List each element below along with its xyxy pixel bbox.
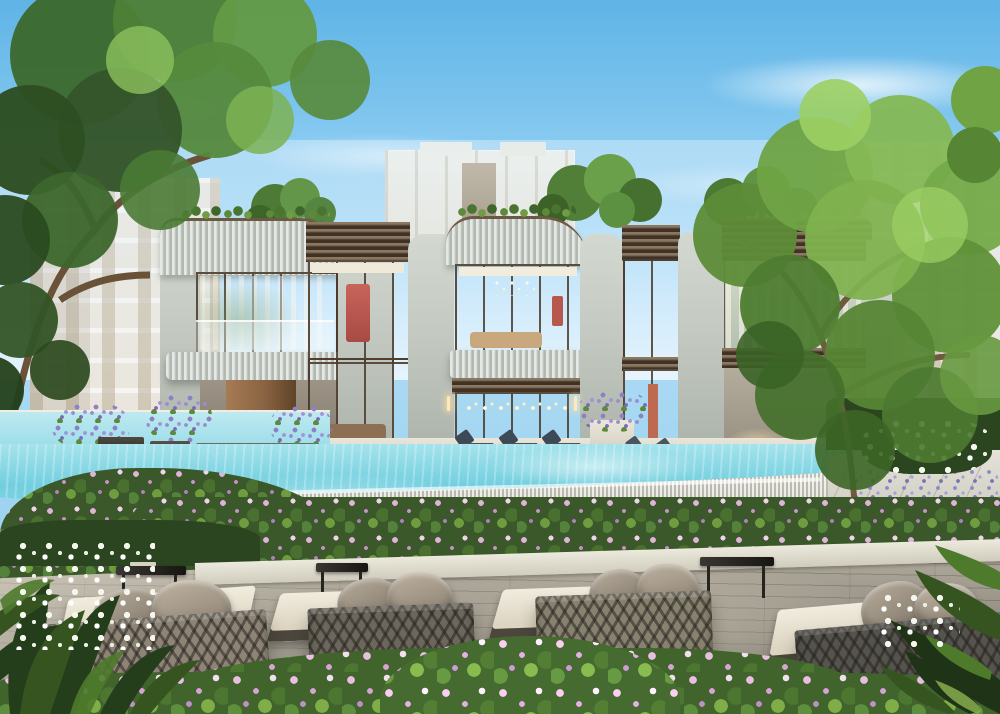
bayC-pendant-lights [464,400,570,416]
white-blossoms-left [15,540,155,650]
tree-left [0,0,410,410]
architectural-rendering [0,0,1000,714]
tree-right-edge [930,60,1000,200]
white-blossoms-right [880,592,960,648]
lavender-cluster [270,404,332,448]
bayC-roof-shrubs [456,204,576,219]
bayC-balcony-band [450,350,584,378]
bayC-chandelier [492,278,536,296]
wall-sconce [447,396,450,411]
wall-sconce [574,396,577,411]
bayC-red-accent [552,296,563,326]
bayC-interior-sofa [470,332,542,348]
bayC-ceiling [459,267,577,276]
bayC-left-pier [408,234,454,462]
lavender-cluster [578,390,650,432]
bayC-parapet [446,216,588,265]
